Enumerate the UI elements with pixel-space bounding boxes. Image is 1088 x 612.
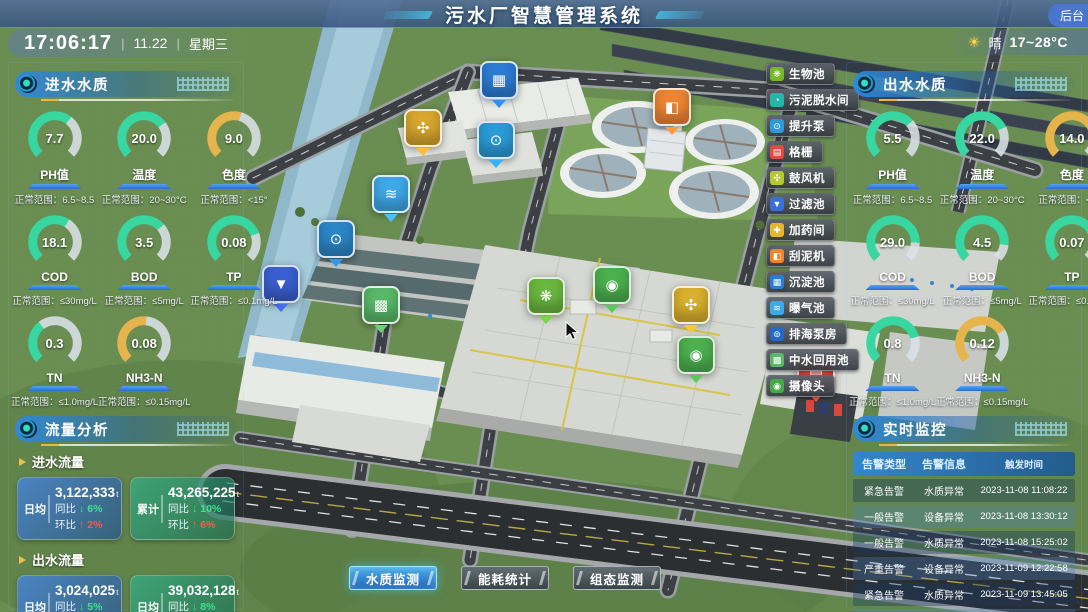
dots-decoration-icon — [177, 77, 229, 91]
gauge-normal-range: 正常范围：≤0.1mg/L — [1028, 293, 1088, 307]
arrow-right-icon — [19, 556, 26, 564]
quality-gauge: 7.7PH值正常范围：6.5~8.5 — [11, 111, 98, 206]
gauge-normal-range: 正常范围：≤1.0mg/L — [849, 394, 936, 408]
legend-icon: ◉ — [770, 379, 784, 393]
gauge-label: 温度 — [98, 166, 190, 183]
gauge-value: 18.1 — [28, 215, 82, 269]
gauge-label: PH值 — [849, 166, 936, 183]
gauge-dial: 0.8 — [866, 316, 920, 370]
page-title: 污水厂智慧管理系统 — [445, 1, 643, 28]
yoy-value: 5% — [87, 601, 102, 612]
dots-decoration-icon — [177, 422, 229, 436]
gauge-label-underline — [117, 386, 171, 391]
gauge-label-underline — [866, 184, 920, 189]
section-header-inlet-quality: 进水水质 — [15, 71, 237, 97]
legend-label: 摄像头 — [789, 378, 825, 394]
alarm-info: 水质异常 — [915, 535, 973, 550]
arrow-down-icon: ↓ — [192, 601, 197, 612]
gauge-label: NH3-N — [936, 371, 1028, 385]
alarm-col-header: 触发时间 — [973, 457, 1075, 471]
gauge-normal-range: 正常范围：≤0.1mg/L — [190, 293, 277, 307]
flow-unit: t — [116, 587, 118, 597]
divider: | — [121, 36, 124, 51]
map-marker[interactable]: ▩ — [362, 286, 400, 324]
legend-icon: ▤ — [770, 145, 784, 159]
flow-mom-row: 环比↑2% — [55, 517, 117, 532]
gauge-dial: 0.08 — [117, 316, 171, 370]
gauge-label-underline — [866, 285, 920, 290]
gauge-label: TN — [11, 371, 98, 385]
legend-label: 格栅 — [789, 144, 813, 160]
gauge-normal-range: 正常范围：≤5mg/L — [936, 293, 1028, 307]
gauge-label-underline — [955, 285, 1009, 290]
legend-item[interactable]: ◧刮泥机 — [766, 245, 835, 267]
section-title: 流量分析 — [45, 419, 109, 440]
gauge-value: 0.07 — [1045, 215, 1088, 269]
gauge-dial: 0.12 — [955, 316, 1009, 370]
section-bullet-icon — [857, 420, 875, 438]
gauge-normal-range: 正常范围：<15° — [1028, 192, 1088, 206]
alarm-col-header: 告警信息 — [915, 456, 973, 472]
gauge-dial: 4.5 — [955, 215, 1009, 269]
alarm-time: 2023-11-08 11:08:22 — [973, 485, 1075, 496]
alarm-time: 2023-11-08 13:30:12 — [973, 511, 1075, 522]
legend-label: 排海泵房 — [789, 326, 837, 342]
alarm-row: 一般告警水质异常2023-11-08 15:25:02 — [853, 531, 1075, 554]
map-marker[interactable]: ▦ — [480, 61, 518, 99]
gauge-dial: 14.0 — [1045, 111, 1088, 165]
flow-group-label: 出水流量 — [19, 550, 233, 569]
quality-gauge: 22.0温度正常范围：20~30°C — [936, 111, 1028, 206]
alarm-table-header: 告警类型告警信息触发时间 — [853, 452, 1075, 476]
gauge-value: 5.5 — [866, 111, 920, 165]
flow-card: 日均39,032,128t同比↓8%环比↑6% — [130, 575, 235, 612]
tab-1[interactable]: 水质监测 — [349, 566, 437, 590]
gauge-label-underline — [1045, 184, 1088, 189]
dots-decoration-icon — [1015, 422, 1067, 436]
flow-card: 日均3,024,025t同比↓5%环比↑3% — [17, 575, 122, 612]
divider: | — [176, 36, 179, 51]
yoy-label: 同比 — [55, 599, 76, 612]
bottom-tab-bar: 水质监测能耗统计组态监测 — [349, 566, 661, 590]
gauge-value: 4.5 — [955, 215, 1009, 269]
gauge-value: 0.08 — [207, 215, 261, 269]
flow-value: 3,122,333t — [55, 485, 117, 500]
gauge-label: TP — [1028, 270, 1088, 284]
gauge-label: NH3-N — [98, 371, 190, 385]
legend-icon: ▩ — [770, 353, 784, 367]
map-marker[interactable]: ◉ — [677, 336, 715, 374]
gauge-dial: 22.0 — [955, 111, 1009, 165]
arrow-up-icon: ↑ — [79, 519, 84, 531]
gauge-label-underline — [207, 184, 261, 189]
gauge-dial: 7.7 — [28, 111, 82, 165]
section-title: 实时监控 — [883, 419, 947, 440]
gauge-dial: 29.0 — [866, 215, 920, 269]
legend-icon: ▦ — [770, 275, 784, 289]
gauge-value: 14.0 — [1045, 111, 1088, 165]
gauge-normal-range: 正常范围：≤0.15mg/L — [936, 394, 1028, 408]
section-title: 进水水质 — [45, 74, 109, 95]
legend-item[interactable]: ▤格栅 — [766, 141, 823, 163]
quality-gauge: 0.12NH3-N正常范围：≤0.15mg/L — [936, 316, 1028, 408]
clock-bar: 17:06:17 | 11.22 | 星期三 — [8, 29, 250, 57]
gauge-label-underline — [117, 285, 171, 290]
flow-value: 3,024,025t — [55, 583, 117, 598]
flow-card-body: 43,265,225t同比↓10%环比↑6% — [168, 485, 230, 532]
gauge-label-underline — [117, 184, 171, 189]
flow-yoy-row: 同比↓5% — [55, 599, 117, 612]
gauge-label-underline — [866, 386, 920, 391]
flow-card: 累计43,265,225t同比↓10%环比↑6% — [130, 477, 235, 540]
legend-label: 加药间 — [789, 222, 825, 238]
gauge-value: 0.8 — [866, 316, 920, 370]
outlet-panel: 出水水质 5.5PH值正常范围：6.5~8.522.0温度正常范围：20~30°… — [846, 62, 1082, 610]
flow-value: 39,032,128t — [168, 583, 230, 598]
alarm-row: 紧急告警水质异常2023-11-08 11:08:22 — [853, 479, 1075, 502]
flow-group-label: 进水流量 — [19, 452, 233, 471]
legend-label: 刮泥机 — [789, 248, 825, 264]
gauge-value: 3.5 — [117, 215, 171, 269]
quality-gauge: 29.0COD正常范围：≤30mg/L — [849, 215, 936, 307]
gauge-label: 色度 — [190, 166, 277, 183]
flow-unit: t — [116, 489, 118, 499]
alarm-col-header: 告警类型 — [853, 456, 915, 472]
arrow-up-icon: ↑ — [192, 519, 197, 531]
title-decoration: 污水厂智慧管理系统 — [385, 1, 703, 28]
section-bullet-icon — [19, 75, 37, 93]
alarm-row: 一般告警设备异常2023-11-08 13:30:12 — [853, 505, 1075, 528]
gauge-label: COD — [849, 270, 936, 284]
inlet-gauge-grid: 7.7PH值正常范围：6.5~8.520.0温度正常范围：20~30°C9.0色… — [9, 103, 243, 408]
alarm-time: 2023-11-09 12:22:58 — [973, 563, 1075, 574]
alarm-type: 严重告警 — [853, 561, 915, 576]
gauge-label: 色度 — [1028, 166, 1088, 183]
mom-value: 2% — [87, 519, 102, 531]
gauge-label-underline — [955, 386, 1009, 391]
alarm-time: 2023-11-09 13:45:05 — [973, 589, 1075, 600]
alarm-type: 紧急告警 — [853, 483, 915, 498]
gauge-label: 温度 — [936, 166, 1028, 183]
section-underline — [879, 99, 1071, 101]
gauge-value: 0.08 — [117, 316, 171, 370]
gauge-label: TN — [849, 371, 936, 385]
gauge-normal-range: 正常范围：20~30°C — [936, 192, 1028, 206]
map-marker[interactable]: ❋ — [527, 277, 565, 315]
map-marker[interactable]: ≋ — [372, 175, 410, 213]
legend-icon: ◧ — [770, 249, 784, 263]
gauge-label-underline — [207, 285, 261, 290]
section-header-flow-analysis: 流量分析 — [15, 416, 237, 442]
gauge-dial: 18.1 — [28, 215, 82, 269]
legend-icon: ❋ — [770, 67, 784, 81]
gauge-label-underline — [28, 184, 82, 189]
legend-label: 曝气池 — [789, 300, 825, 316]
flow-card: 日均3,122,333t同比↓6%环比↑2% — [17, 477, 122, 540]
flow-period-label: 日均 — [22, 495, 50, 523]
gauge-normal-range: 正常范围：6.5~8.5 — [11, 192, 98, 206]
legend-icon: ◔ — [770, 93, 784, 107]
flow-yoy-row: 同比↓8% — [168, 599, 230, 612]
map-marker[interactable]: ◉ — [593, 266, 631, 304]
tab-2[interactable]: 能耗统计 — [461, 566, 549, 590]
flow-unit: t — [237, 489, 239, 499]
flow-groups: 进水流量日均3,122,333t同比↓6%环比↑2%累计43,265,225t同… — [9, 452, 243, 612]
gauge-dial: 5.5 — [866, 111, 920, 165]
section-header-outlet-quality: 出水水质 — [853, 71, 1075, 97]
quality-gauge: 0.3TN正常范围：≤1.0mg/L — [11, 316, 98, 408]
alarm-time: 2023-11-08 15:25:02 — [973, 537, 1075, 548]
alarm-row: 严重告警设备异常2023-11-09 12:22:58 — [853, 557, 1075, 580]
section-bullet-icon — [19, 420, 37, 438]
legend-item[interactable]: ❋生物池 — [766, 63, 835, 85]
gauge-label-underline — [28, 285, 82, 290]
gauge-value: 9.0 — [207, 111, 261, 165]
quality-gauge: 0.08TP正常范围：≤0.1mg/L — [190, 215, 277, 307]
flow-mom-row: 环比↑6% — [168, 517, 230, 532]
gauge-label: PH值 — [11, 166, 98, 183]
gauge-dial: 20.0 — [117, 111, 171, 165]
mom-label: 环比 — [168, 517, 189, 532]
quality-gauge: 18.1COD正常范围：≤30mg/L — [11, 215, 98, 307]
map-marker[interactable]: ⊙ — [317, 220, 355, 258]
legend-icon: ⊙ — [770, 119, 784, 133]
clock-time: 17:06:17 — [24, 32, 112, 55]
flow-card-body: 3,024,025t同比↓5%环比↑3% — [55, 583, 117, 612]
yoy-value: 6% — [87, 503, 102, 515]
flow-period-label: 日均 — [135, 593, 163, 612]
gauge-normal-range: 正常范围：≤30mg/L — [11, 293, 98, 307]
legend-label: 过滤池 — [789, 196, 825, 212]
arrow-down-icon: ↓ — [79, 503, 84, 515]
gauge-dial: 9.0 — [207, 111, 261, 165]
alarm-type: 一般告警 — [853, 509, 915, 524]
map-marker[interactable]: ◧ — [653, 88, 691, 126]
yoy-label: 同比 — [168, 599, 189, 612]
arrow-down-icon: ↓ — [192, 503, 197, 515]
outlet-gauge-grid: 5.5PH值正常范围：6.5~8.522.0温度正常范围：20~30°C14.0… — [847, 103, 1081, 408]
gauge-normal-range: 正常范围：≤1.0mg/L — [11, 394, 98, 408]
section-header-monitor: 实时监控 — [853, 416, 1075, 442]
quality-gauge: 14.0色度正常范围：<15° — [1028, 111, 1088, 206]
alarm-info: 水质异常 — [915, 587, 973, 602]
flow-unit: t — [237, 587, 239, 597]
gauge-normal-range: 正常范围：≤30mg/L — [849, 293, 936, 307]
map-marker[interactable]: ✣ — [404, 109, 442, 147]
legend-label: 提升泵 — [789, 118, 825, 134]
gauge-label-underline — [955, 184, 1009, 189]
alarm-type: 紧急告警 — [853, 587, 915, 602]
flow-period-label: 日均 — [22, 593, 50, 612]
legend-item[interactable]: ⊙提升泵 — [766, 115, 835, 137]
gauge-value: 7.7 — [28, 111, 82, 165]
quality-gauge: 0.08NH3-N正常范围：≤0.15mg/L — [98, 316, 190, 408]
gauge-label-underline — [1045, 285, 1088, 290]
gauge-label: TP — [190, 270, 277, 284]
gauge-label-underline — [28, 386, 82, 391]
clock-weekday: 星期三 — [189, 34, 228, 53]
admin-button[interactable]: 后台 — [1048, 4, 1088, 27]
legend-item[interactable]: ✚加药间 — [766, 219, 835, 241]
legend-label: 沉淀池 — [789, 274, 825, 290]
quality-gauge: 0.8TN正常范围：≤1.0mg/L — [849, 316, 936, 408]
section-bullet-icon — [857, 75, 875, 93]
gauge-normal-range: 正常范围：<15° — [190, 192, 277, 206]
gauge-value: 29.0 — [866, 215, 920, 269]
dashboard-stage: ▦◧✣⊙≋⊙▼▩❋◉✣◉▤ ❋生物池◔污泥脱水间⊙提升泵▤格栅✣鼓风机▼过滤池✚… — [0, 0, 1088, 612]
map-marker[interactable]: ✣ — [672, 286, 710, 324]
legend-icon: ▼ — [770, 197, 784, 211]
alarm-row: 紧急告警水质异常2023-11-09 13:45:05 — [853, 583, 1075, 606]
legend-icon: ✚ — [770, 223, 784, 237]
inlet-panel: 进水水质 7.7PH值正常范围：6.5~8.520.0温度正常范围：20~30°… — [8, 62, 244, 610]
legend-item[interactable]: ▼过滤池 — [766, 193, 835, 215]
yoy-value: 8% — [200, 601, 215, 612]
legend-icon: ✣ — [770, 171, 784, 185]
legend-label: 中水回用池 — [789, 352, 849, 368]
flow-cards: 日均3,122,333t同比↓6%环比↑2%累计43,265,225t同比↓10… — [17, 477, 235, 540]
clock-date: 11.22 — [133, 35, 167, 51]
top-header-bar: 污水厂智慧管理系统 — [0, 0, 1088, 28]
section-underline — [41, 444, 233, 446]
legend-item[interactable]: ◉摄像头 — [766, 375, 835, 397]
flow-period-label: 累计 — [135, 495, 163, 523]
alarm-info: 设备异常 — [915, 561, 973, 576]
legend-icon: ⊚ — [770, 327, 784, 341]
gauge-dial: 3.5 — [117, 215, 171, 269]
weather-bar: ☀ 晴 17~28°C — [952, 29, 1088, 55]
quality-gauge: 0.07TP正常范围：≤0.1mg/L — [1028, 215, 1088, 307]
gauge-value: 0.3 — [28, 316, 82, 370]
gauge-normal-range: 正常范围：6.5~8.5 — [849, 192, 936, 206]
tab-3[interactable]: 组态监测 — [573, 566, 661, 590]
yoy-label: 同比 — [55, 501, 76, 516]
legend-item[interactable]: ✣鼓风机 — [766, 167, 835, 189]
dots-decoration-icon — [1015, 77, 1067, 91]
quality-gauge: 20.0温度正常范围：20~30°C — [98, 111, 190, 206]
legend-item[interactable]: ≋曝气池 — [766, 297, 835, 319]
map-marker[interactable]: ⊙ — [477, 121, 515, 159]
weather-temperature: 17~28°C — [1009, 34, 1068, 50]
gauge-value: 0.12 — [955, 316, 1009, 370]
flow-yoy-row: 同比↓10% — [168, 501, 230, 516]
gauge-normal-range: 正常范围：≤0.15mg/L — [98, 394, 190, 408]
flow-card-body: 3,122,333t同比↓6%环比↑2% — [55, 485, 117, 532]
arrow-down-icon: ↓ — [79, 601, 84, 612]
flow-card-body: 39,032,128t同比↓8%环比↑6% — [168, 583, 230, 612]
arrow-right-icon — [19, 458, 26, 466]
gauge-value: 20.0 — [117, 111, 171, 165]
gauge-normal-range: 正常范围：≤5mg/L — [98, 293, 190, 307]
section-underline — [41, 99, 233, 101]
gauge-label: COD — [11, 270, 98, 284]
gauge-dial: 0.07 — [1045, 215, 1088, 269]
alarm-type: 一般告警 — [853, 535, 915, 550]
flow-yoy-row: 同比↓6% — [55, 501, 117, 516]
legend-item[interactable]: ⊚排海泵房 — [766, 323, 847, 345]
quality-gauge: 5.5PH值正常范围：6.5~8.5 — [849, 111, 936, 206]
gauge-value: 22.0 — [955, 111, 1009, 165]
alarm-info: 设备异常 — [915, 509, 973, 524]
sun-icon: ☀ — [968, 34, 981, 51]
gauge-dial: 0.3 — [28, 316, 82, 370]
gauge-normal-range: 正常范围：20~30°C — [98, 192, 190, 206]
quality-gauge: 9.0色度正常范围：<15° — [190, 111, 277, 206]
quality-gauge: 3.5BOD正常范围：≤5mg/L — [98, 215, 190, 307]
yoy-value: 10% — [200, 503, 221, 515]
quality-gauge: 4.5BOD正常范围：≤5mg/L — [936, 215, 1028, 307]
legend-label: 鼓风机 — [789, 170, 825, 186]
legend-label: 污泥脱水间 — [789, 92, 849, 108]
section-title: 出水水质 — [883, 74, 947, 95]
legend-item[interactable]: ▦沉淀池 — [766, 271, 835, 293]
weather-condition: 晴 — [988, 33, 1001, 52]
mom-label: 环比 — [55, 517, 76, 532]
flow-group-title: 进水流量 — [32, 452, 84, 471]
gauge-dial: 0.08 — [207, 215, 261, 269]
legend-icon: ≋ — [770, 301, 784, 315]
yoy-label: 同比 — [168, 501, 189, 516]
legend-label: 生物池 — [789, 66, 825, 82]
alarm-info: 水质异常 — [915, 483, 973, 498]
flow-cards: 日均3,024,025t同比↓5%环比↑3%日均39,032,128t同比↓8%… — [17, 575, 235, 612]
gauge-label: BOD — [98, 270, 190, 284]
gauge-label: BOD — [936, 270, 1028, 284]
section-underline — [879, 444, 1071, 446]
flow-value: 43,265,225t — [168, 485, 230, 500]
flow-group-title: 出水流量 — [32, 550, 84, 569]
alarm-table-body: 紧急告警水质异常2023-11-08 11:08:22一般告警设备异常2023-… — [847, 479, 1081, 612]
mom-value: 6% — [200, 519, 215, 531]
